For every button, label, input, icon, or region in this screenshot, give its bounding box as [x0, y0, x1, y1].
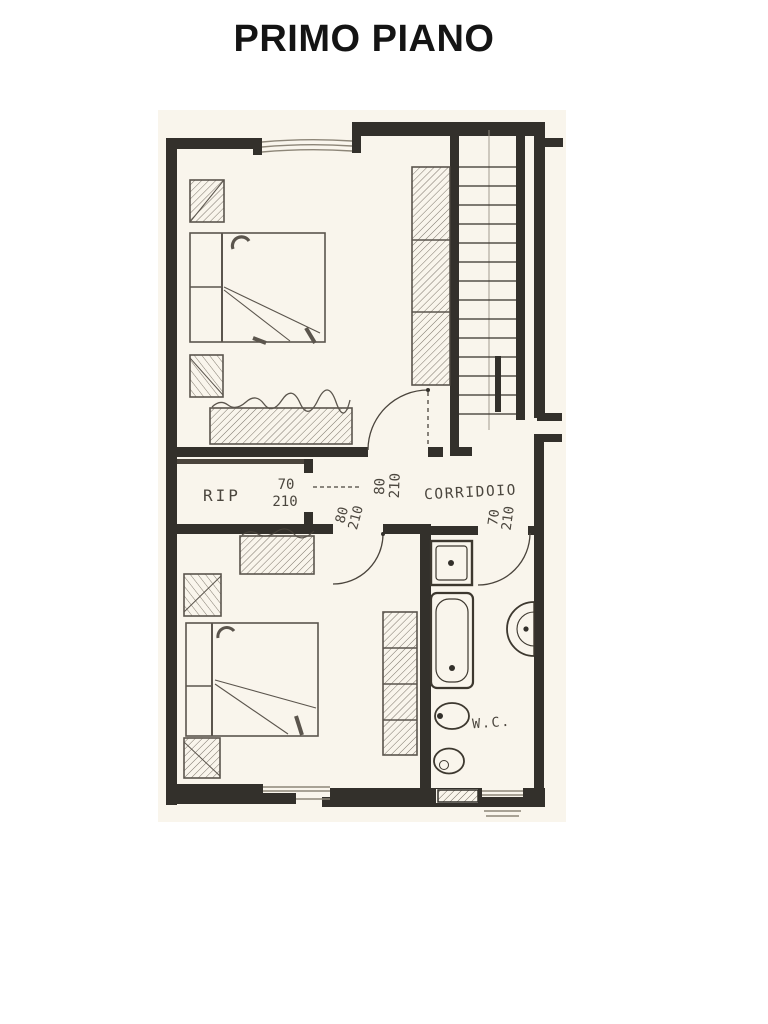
- dim-height: 210: [272, 494, 297, 510]
- nightstand: [184, 574, 221, 616]
- wardrobe: [383, 612, 417, 755]
- floor-plan: RIP CORRIDOIO W.C. 70 210 80 210 80 210 …: [0, 0, 768, 1024]
- nightstand: [190, 180, 224, 222]
- dim-width: 70: [278, 477, 295, 493]
- nightstand: [184, 738, 220, 778]
- room-label-wc: W.C.: [472, 714, 512, 733]
- nightstand: [190, 355, 223, 397]
- dim-height: 210: [387, 473, 404, 499]
- dresser: [240, 529, 314, 574]
- wardrobe: [412, 167, 450, 385]
- dim-height: 210: [499, 505, 518, 531]
- stair-handrail: [495, 356, 501, 412]
- radiator: [438, 790, 478, 802]
- dim-width: 80: [372, 478, 389, 495]
- room-label-storage: RIP: [203, 486, 241, 505]
